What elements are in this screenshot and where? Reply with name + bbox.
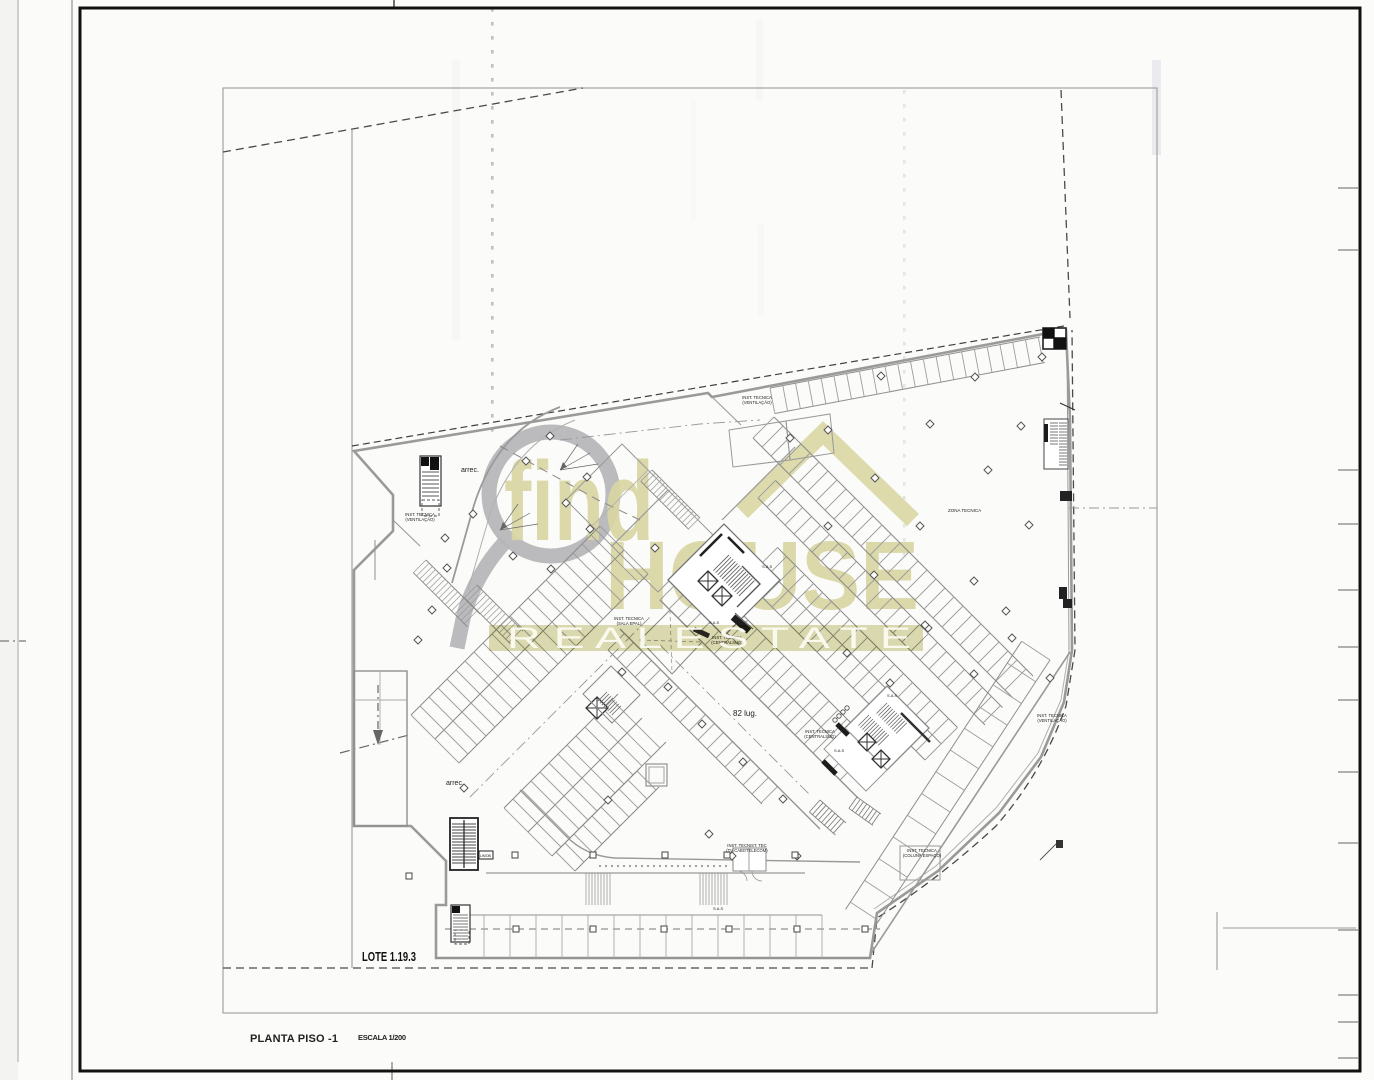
svg-text:INST. TECNICA(VENTILAÇÃO): INST. TECNICA(VENTILAÇÃO): [1037, 713, 1067, 723]
svg-text:LOTE 1.19.3: LOTE 1.19.3: [362, 950, 416, 964]
svg-text:PLANTA PISO -1: PLANTA PISO -1: [250, 1033, 338, 1045]
svg-text:LIMOB: LIMOB: [480, 854, 492, 858]
svg-text:S.A.S: S.A.S: [762, 564, 773, 569]
svg-text:INST. TECNICA(COLUNA ESPAÇO): INST. TECNICA(COLUNA ESPAÇO): [903, 848, 942, 858]
svg-text:82 lug.: 82 lug.: [733, 709, 757, 718]
svg-text:INST. TECNIST. TEC(TV CABOTELE: INST. TECNIST. TEC(TV CABOTELECOM): [726, 843, 768, 853]
svg-text:arrec.: arrec.: [446, 780, 464, 787]
svg-text:INST. TECNICA(VENTILAÇÃO): INST. TECNICA(VENTILAÇÃO): [742, 395, 772, 405]
svg-text:INST. TECNICA(VENTILAÇÃO): INST. TECNICA(VENTILAÇÃO): [405, 512, 435, 522]
svg-text:ZONA TECNICA: ZONA TECNICA: [948, 508, 981, 513]
svg-text:R E A L E S T A T E: R E A L E S T A T E: [507, 622, 911, 655]
svg-text:S.A.S: S.A.S: [834, 748, 845, 753]
svg-text:ESCALA 1/200: ESCALA 1/200: [358, 1033, 406, 1042]
svg-text:arrec.: arrec.: [461, 467, 479, 474]
svg-text:S.A.S: S.A.S: [713, 906, 724, 911]
svg-text:S.A.S: S.A.S: [887, 693, 898, 698]
svg-text:INST. TECNICA(CENTRALSUG): INST. TECNICA(CENTRALSUG): [804, 729, 836, 739]
